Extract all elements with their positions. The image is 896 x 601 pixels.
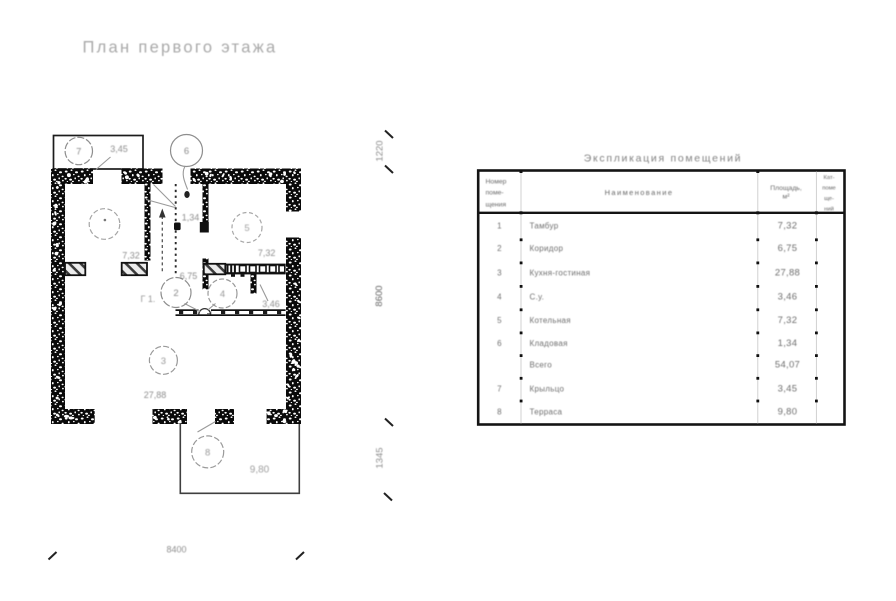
svg-text:54,07: 54,07 <box>775 360 800 371</box>
svg-text:9,80: 9,80 <box>778 407 798 418</box>
svg-text:6: 6 <box>497 339 502 348</box>
svg-text:Всего: Всего <box>530 361 553 370</box>
svg-text:27,88: 27,88 <box>775 268 800 279</box>
svg-text:7: 7 <box>76 147 81 158</box>
svg-text:3,45: 3,45 <box>110 144 128 154</box>
svg-text:1345: 1345 <box>374 447 385 468</box>
svg-text:Коридор: Коридор <box>530 244 564 253</box>
svg-text:5: 5 <box>244 223 249 234</box>
svg-text:1,34: 1,34 <box>778 338 798 349</box>
svg-text:8400: 8400 <box>166 545 186 555</box>
svg-text:6,75: 6,75 <box>778 243 798 254</box>
svg-text:7,32: 7,32 <box>778 315 798 326</box>
svg-text:8600: 8600 <box>374 285 385 306</box>
svg-text:Экспликация помещений: Экспликация помещений <box>584 153 743 165</box>
svg-text:щения: щения <box>486 202 507 209</box>
svg-text:Котельная: Котельная <box>530 316 571 325</box>
svg-text:7: 7 <box>497 385 502 394</box>
svg-text:2: 2 <box>497 244 502 253</box>
svg-text:1: 1 <box>497 222 502 231</box>
svg-text:8: 8 <box>205 448 210 459</box>
svg-text:6: 6 <box>184 146 189 157</box>
svg-text:3,46: 3,46 <box>778 292 798 303</box>
svg-text:Кладовая: Кладовая <box>530 339 568 348</box>
svg-text:м²: м² <box>783 194 791 201</box>
svg-text:3,46: 3,46 <box>262 299 280 309</box>
svg-text:5: 5 <box>497 316 502 325</box>
svg-text:7,32: 7,32 <box>258 248 276 258</box>
svg-text:4: 4 <box>220 289 225 300</box>
svg-text:ний: ний <box>824 206 834 213</box>
svg-text:С.у.: С.у. <box>530 293 545 302</box>
svg-text:7,32: 7,32 <box>778 221 798 232</box>
svg-text:Тамбур: Тамбур <box>530 222 559 231</box>
svg-text:3: 3 <box>161 356 166 367</box>
svg-text:План первого этажа: План первого этажа <box>82 39 277 57</box>
svg-text:Терраса: Терраса <box>530 408 563 417</box>
svg-text:4: 4 <box>497 293 502 302</box>
svg-text:поме: поме <box>822 186 836 192</box>
svg-text:поме-: поме- <box>486 190 504 197</box>
svg-text:9,80: 9,80 <box>250 465 270 476</box>
svg-text:2: 2 <box>173 288 178 299</box>
svg-text:1,34: 1,34 <box>182 213 200 223</box>
svg-text:Крыльцо: Крыльцо <box>530 385 565 394</box>
svg-text:8: 8 <box>497 408 502 417</box>
svg-text:ще-: ще- <box>824 196 834 202</box>
svg-text:Площадь,: Площадь, <box>770 185 802 192</box>
svg-text:Г 1.: Г 1. <box>141 294 156 304</box>
svg-text:7,32: 7,32 <box>122 251 140 261</box>
svg-text:Наименование: Наименование <box>605 188 674 197</box>
svg-text:3,45: 3,45 <box>778 384 798 395</box>
svg-text:Кат-: Кат- <box>823 175 834 181</box>
svg-text:Номер: Номер <box>486 179 507 186</box>
svg-text:27,88: 27,88 <box>144 390 167 400</box>
svg-text:3: 3 <box>497 269 502 278</box>
svg-text:6,75: 6,75 <box>180 271 198 281</box>
svg-text:1220: 1220 <box>374 140 385 161</box>
svg-text:Кухня-гостиная: Кухня-гостиная <box>530 269 591 278</box>
